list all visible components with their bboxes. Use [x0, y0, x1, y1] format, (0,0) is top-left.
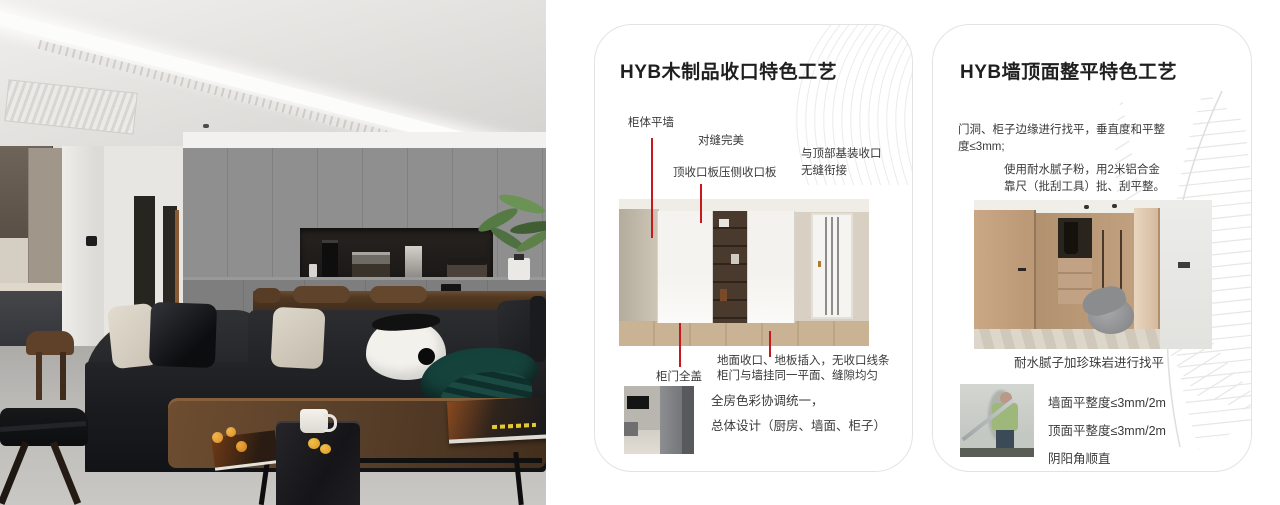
pillow-black-leather	[149, 302, 217, 368]
label-floor-joint: 地面收口、地板插入，无收口线条 柜门与墙挂同一平面、缝隙均匀	[717, 354, 890, 384]
render-white-doors-right	[747, 211, 795, 323]
light-switch	[86, 236, 97, 246]
hallway-door-wood-edge	[175, 210, 179, 306]
interior-thumb-image	[624, 386, 694, 454]
spec-ceiling-flatness: 顶面平整度≤3mm/2m	[1048, 417, 1166, 445]
hp-floor	[974, 329, 1160, 349]
kitchen-backsplash	[0, 238, 28, 283]
side-table-stone	[276, 421, 360, 505]
ceiling-spot-1	[203, 124, 209, 128]
thumb-dark-column	[682, 386, 694, 454]
leader-door-cover	[679, 323, 681, 367]
summary-line2: 总体设计（厨房、墙面、柜子）	[711, 418, 886, 435]
hp-hanging-clothes	[1064, 222, 1078, 254]
cabinet-render-image	[619, 199, 869, 346]
label-seam-perfect: 对缝完美	[698, 133, 744, 150]
hallway-photo-image	[974, 200, 1212, 349]
card1-title: HYB木制品收口特色工艺	[620, 57, 837, 84]
hp-open-door-leaf	[1134, 208, 1160, 344]
label-floor-line1: 地面收口、地板插入，无收口线条	[717, 354, 890, 369]
para-leveling: 门洞、柜子边缘进行找平，垂直度和平整 度≤3mm;	[958, 122, 1165, 156]
wp-floor	[960, 448, 1034, 457]
hp-left-wood-door	[974, 210, 1036, 342]
hp-wardrobe-slit	[1120, 230, 1122, 294]
render-left-wall	[619, 209, 659, 321]
render-door-slats	[825, 217, 839, 315]
orange-fruit	[212, 432, 223, 443]
card-wood-finish-craft: HYB木制品收口特色工艺 柜体平墙 对缝完美 顶收口板压侧收口板 与顶部基装收口…	[594, 24, 913, 472]
summary-line1: 全房色彩协调统一，	[711, 393, 824, 410]
label-top-board: 顶收口板压侧收口板	[673, 165, 777, 182]
thumb-sofa	[624, 422, 638, 436]
dining-chair-left	[26, 331, 74, 355]
label-top-joint-line1: 与顶部基装收口	[801, 146, 882, 163]
render-floor	[619, 321, 869, 346]
wall-pillar	[62, 146, 104, 346]
hallway-door-1	[134, 196, 155, 316]
pillow-cream-2	[270, 307, 325, 370]
render-shelf-item	[720, 289, 727, 301]
hp-spot	[1084, 205, 1089, 209]
spec-wall-flatness: 墙面平整度≤3mm/2m	[1048, 389, 1166, 417]
plant-vase	[508, 258, 530, 280]
worker-photo-image	[960, 384, 1034, 457]
render-white-doors-left	[657, 211, 713, 323]
plant-vase-cap	[514, 254, 524, 260]
thumb-grey-cabinet	[660, 386, 682, 454]
render-door-handle	[818, 261, 821, 267]
dining-chair-left-leg	[36, 352, 42, 400]
leader-cabinet-flush	[651, 138, 653, 238]
niche-coffee-machine-dark	[322, 240, 338, 280]
render-shelf-item	[731, 254, 739, 264]
para-putty: 使用耐水腻子粉，用2米铝合金 靠尺（批刮工具）批、刮平整。	[1004, 162, 1165, 196]
leader-top-board	[700, 184, 702, 223]
render-shelf-item	[719, 219, 729, 227]
hp-door-handle	[1018, 268, 1026, 271]
para-putty-line2: 靠尺（批刮工具）批、刮平整。	[1004, 179, 1165, 196]
spec-list: 墙面平整度≤3mm/2m 顶面平整度≤3mm/2m 阴阳角顺直	[1048, 389, 1166, 472]
dining-chair-2	[370, 286, 427, 303]
thumb-tv	[627, 396, 649, 409]
living-room-photo	[0, 0, 546, 505]
photo-caption: 耐水腻子加珍珠岩进行找平	[1014, 355, 1164, 372]
pillow-dark-2	[530, 296, 546, 362]
hp-spot	[1112, 204, 1117, 208]
magazine-right	[447, 396, 546, 443]
grey-wall-bulkhead	[183, 132, 546, 148]
label-top-joint-line2: 无缝衔接	[801, 163, 882, 180]
para-leveling-line2: 度≤3mm;	[958, 139, 1165, 156]
niche-cup-rack	[352, 252, 390, 277]
kitchen-tall-cabinet	[28, 148, 63, 284]
page: HYB木制品收口特色工艺 柜体平墙 对缝完美 顶收口板压侧收口板 与顶部基装收口…	[0, 0, 1280, 505]
plant	[470, 196, 546, 282]
render-shelf-unit	[713, 211, 747, 323]
lemon-fruit	[320, 444, 331, 454]
wp-pants	[996, 430, 1014, 450]
label-cabinet-flush: 柜体平墙	[628, 115, 674, 132]
hp-bright-room	[1160, 200, 1212, 349]
para-putty-line1: 使用耐水腻子粉，用2米铝合金	[1004, 162, 1165, 179]
lemon-fruit	[308, 438, 320, 449]
kitchen-counter	[0, 283, 62, 291]
niche-espresso-machine	[405, 246, 422, 277]
label-top-joint: 与顶部基装收口 无缝衔接	[801, 146, 882, 180]
orange-fruit	[236, 441, 247, 452]
niche-mug	[309, 264, 317, 277]
hp-room-switch	[1178, 262, 1190, 268]
card2-title: HYB墙顶面整平特色工艺	[960, 57, 1177, 84]
label-door-cover: 柜门全盖	[656, 369, 702, 386]
orange-fruit	[226, 427, 236, 437]
dining-chair-1	[293, 286, 350, 303]
card-wall-leveling-craft: HYB墙顶面整平特色工艺 门洞、柜子边缘进行找平，垂直度和平整 度≤3mm; 使…	[932, 24, 1252, 472]
dining-chair-3	[253, 288, 281, 303]
label-floor-line2: 柜门与墙挂同一平面、缝隙均匀	[717, 369, 890, 384]
hp-wardrobe-slit	[1102, 230, 1104, 294]
spec-corner-straight: 阴阳角顺直	[1048, 445, 1166, 472]
dining-chair-left-leg	[60, 352, 66, 400]
para-leveling-line1: 门洞、柜子边缘进行找平，垂直度和平整	[958, 122, 1165, 139]
